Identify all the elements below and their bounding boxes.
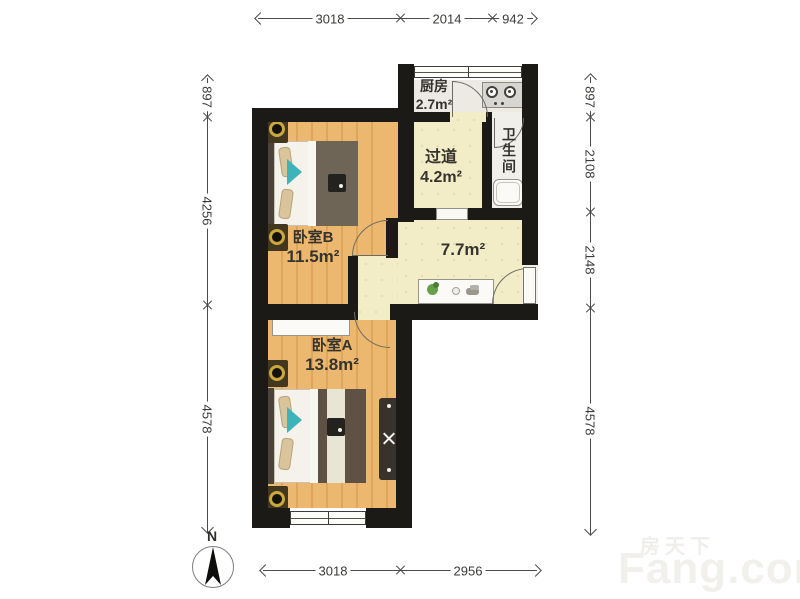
hallway-label: 过道 4.2m²: [420, 148, 462, 188]
wall-segment: [398, 64, 414, 222]
slipper-icon: [470, 285, 479, 290]
nightstand: [266, 224, 288, 251]
bed-a-tray: [327, 418, 345, 436]
bathtub-inner-line: [496, 182, 520, 203]
wall-segment: [522, 64, 538, 265]
dim-tick: [395, 13, 405, 23]
dim-tick: [585, 112, 595, 122]
bedroom-b-label: 卧室B 11.5m²: [287, 229, 340, 267]
bowl-icon: [452, 287, 460, 295]
plant-leaf-icon: [433, 282, 439, 288]
stove-burner-dot: [508, 90, 511, 93]
stove-knob-dot: [501, 102, 504, 105]
dim-tick: [202, 300, 212, 310]
room-name: 厨房: [416, 77, 453, 95]
dim-top-1: 3018: [313, 12, 348, 27]
hallway-opening-sill: [436, 208, 468, 220]
bed-b-throw: [287, 159, 302, 185]
dim-arrow: [584, 523, 597, 536]
radiator-dot: [387, 404, 391, 408]
bed-b-tray-dot: [339, 184, 343, 188]
north-arrow-icon: [192, 546, 234, 588]
dim-tick: [585, 303, 595, 313]
floorplan-image: 厨房 2.7m² 过道 4.2m² 卫生间 7.7m² 卧室B 11.5m² 卧…: [0, 0, 800, 599]
dim-left-1: 897: [200, 83, 215, 111]
wall-segment: [396, 304, 412, 528]
bed-a-blanket-panel: [327, 389, 345, 483]
dim-bottom-2: 2956: [451, 564, 486, 579]
dim-tick: [202, 112, 212, 122]
dim-right-1: 897: [583, 83, 598, 111]
wall-segment: [414, 112, 450, 122]
room-area: 4.2m²: [420, 168, 462, 188]
dim-arrow: [259, 564, 272, 577]
room-area: 2.7m²: [416, 95, 453, 113]
lamp-icon: [269, 229, 285, 245]
wall-segment: [468, 208, 538, 220]
dim-top-2: 2014: [430, 12, 465, 27]
dim-right-2: 2108: [583, 147, 598, 182]
bedroom-b-floor-ext: [386, 122, 398, 218]
watermark-en: Fang.com: [618, 544, 800, 594]
nightstand: [266, 360, 288, 387]
dim-left-2: 4256: [200, 194, 215, 229]
bedroom-a-label: 卧室A 13.8m²: [305, 337, 359, 375]
dim-left-3: 4578: [200, 402, 215, 437]
dim-bottom-1: 3018: [316, 564, 351, 579]
room-name: 卧室A: [305, 337, 359, 355]
wall-segment: [398, 208, 436, 220]
bathroom-label: 卫生间: [500, 127, 518, 175]
room-name: 过道: [420, 148, 462, 168]
living-label: 7.7m²: [441, 240, 485, 260]
stove-knob-dot: [494, 102, 497, 105]
kitchen-label: 厨房 2.7m²: [416, 77, 453, 113]
wall-segment: [366, 508, 412, 528]
stove-burner-dot: [490, 90, 493, 93]
wall-segment: [252, 108, 268, 528]
room-area: 11.5m²: [287, 247, 340, 267]
bedroom-a-window: [290, 511, 366, 525]
lamp-icon: [269, 491, 285, 507]
dim-right-3: 2148: [583, 243, 598, 278]
bed-a-sheet-fold: [310, 389, 318, 483]
room-area: 7.7m²: [441, 240, 485, 260]
bed-a-throw: [287, 407, 302, 433]
dim-top-3: 942: [499, 12, 527, 27]
dim-arrow: [254, 12, 267, 25]
dim-arrow: [529, 564, 542, 577]
wall-segment: [252, 508, 290, 528]
lamp-icon: [269, 365, 285, 381]
bed-b-sheet-fold: [308, 141, 316, 226]
wall-segment: [252, 108, 412, 122]
radiator-dot: [387, 468, 391, 472]
dim-tick: [487, 13, 497, 23]
north-label: N: [207, 528, 217, 544]
dim-arrow: [525, 12, 538, 25]
dim-tick: [395, 565, 405, 575]
bed-b-tray: [328, 174, 346, 192]
wall-segment: [268, 304, 352, 320]
lamp-icon: [269, 121, 285, 137]
dim-tick: [585, 207, 595, 217]
entry-door-leaf: [523, 267, 536, 304]
dim-right-4: 4578: [583, 404, 598, 439]
room-name: 卧室B: [287, 229, 340, 247]
wall-segment: [482, 122, 492, 208]
living-floor-ext: [358, 256, 398, 304]
room-area: 13.8m²: [305, 355, 359, 375]
wall-segment: [390, 304, 538, 320]
bed-a-tray-dot: [338, 428, 342, 432]
